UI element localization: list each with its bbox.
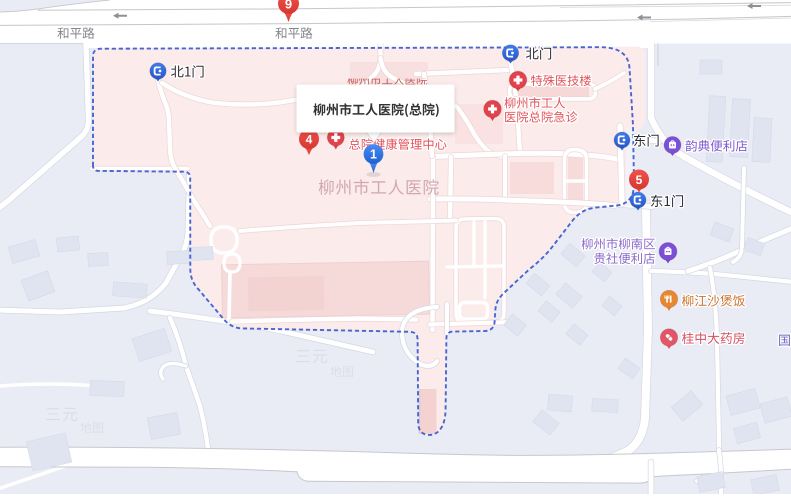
- svg-text:4: 4: [306, 133, 313, 147]
- svg-text:5: 5: [636, 173, 643, 187]
- svg-text:1: 1: [370, 148, 377, 162]
- svg-text:9: 9: [285, 0, 292, 12]
